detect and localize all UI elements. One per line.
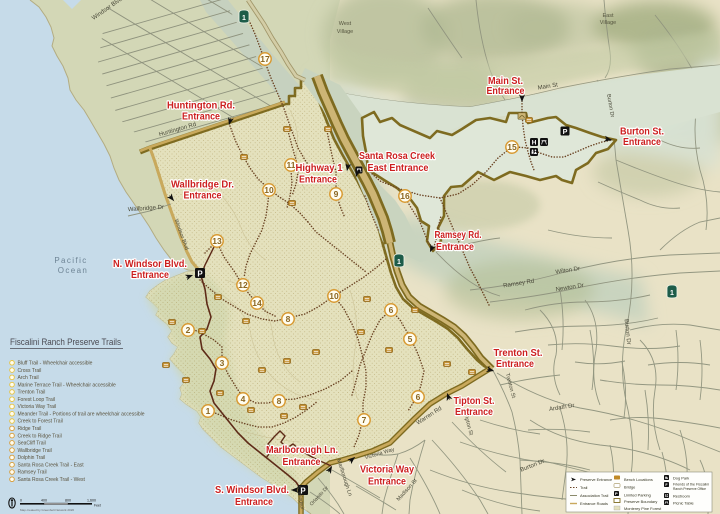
svg-text:8: 8 — [286, 314, 291, 324]
svg-text:Entrance: Entrance — [368, 476, 406, 488]
svg-text:Entrance: Entrance — [487, 85, 525, 97]
svg-text:Creek to Ridge Trail: Creek to Ridge Trail — [18, 433, 62, 439]
svg-text:Dog Park: Dog Park — [673, 476, 689, 481]
svg-text:Ramsey Rd.: Ramsey Rd. — [435, 229, 482, 241]
svg-text:P: P — [563, 127, 568, 136]
svg-text:Map created by Greenbelt Netwo: Map created by Greenbelt Network 2020 — [20, 508, 74, 512]
svg-text:Restroom: Restroom — [673, 494, 690, 499]
svg-text:Bluff Trail - Wheelchair acces: Bluff Trail - Wheelchair accessible — [18, 361, 93, 367]
svg-text:P: P — [197, 269, 203, 278]
svg-text:Association Trail: Association Trail — [580, 493, 608, 498]
svg-text:1: 1 — [397, 259, 401, 266]
svg-text:Ramsey Trail: Ramsey Trail — [18, 470, 47, 476]
svg-text:Victoria Way: Victoria Way — [360, 464, 414, 476]
svg-text:1: 1 — [206, 406, 211, 416]
svg-text:Victoria Way Trail: Victoria Way Trail — [18, 404, 57, 410]
svg-text:Feet: Feet — [94, 504, 101, 508]
svg-text:Preserve Boundary: Preserve Boundary — [624, 499, 657, 504]
svg-text:Village: Village — [337, 29, 353, 35]
svg-text:Village: Village — [600, 20, 616, 26]
svg-text:Creek to Forest Trail: Creek to Forest Trail — [18, 419, 63, 425]
svg-text:3: 3 — [220, 358, 225, 368]
svg-text:Wallbridge Trail: Wallbridge Trail — [18, 448, 52, 454]
svg-text:Entrance Roads: Entrance Roads — [580, 501, 608, 506]
svg-text:400: 400 — [41, 499, 47, 503]
svg-text:12: 12 — [238, 280, 248, 290]
svg-text:East: East — [602, 13, 613, 19]
svg-text:West: West — [339, 21, 352, 27]
svg-text:Ocean: Ocean — [58, 266, 89, 275]
svg-text:Trail: Trail — [580, 485, 588, 490]
svg-text:1: 1 — [242, 15, 246, 22]
svg-text:S. Windsor Blvd.: S. Windsor Blvd. — [215, 484, 289, 496]
svg-text:Ridge Trail: Ridge Trail — [18, 426, 42, 432]
svg-text:17: 17 — [260, 54, 270, 64]
svg-text:10: 10 — [329, 291, 339, 301]
svg-text:Ranch Preserve Office: Ranch Preserve Office — [673, 486, 706, 491]
svg-text:1,600: 1,600 — [87, 499, 96, 503]
svg-text:Santa Rosa Creek Trail - East: Santa Rosa Creek Trail - East — [18, 462, 85, 468]
svg-text:Marine Terrace Trail - Wheelch: Marine Terrace Trail - Wheelchair access… — [18, 382, 116, 388]
svg-text:Entrance: Entrance — [182, 111, 220, 123]
svg-text:10: 10 — [264, 185, 274, 195]
svg-text:13: 13 — [212, 236, 222, 246]
svg-text:Meander Trail - Portions of tr: Meander Trail - Portions of trail are wh… — [18, 411, 145, 417]
svg-text:6: 6 — [416, 392, 421, 402]
svg-text:16: 16 — [400, 191, 410, 201]
svg-text:Entrance: Entrance — [436, 241, 474, 253]
svg-text:Arch Trail: Arch Trail — [18, 375, 39, 381]
svg-text:Bridge: Bridge — [624, 485, 635, 490]
svg-text:6: 6 — [389, 305, 394, 315]
svg-text:8: 8 — [277, 396, 282, 406]
svg-text:Entrance: Entrance — [184, 190, 222, 202]
svg-text:Trenton Trail: Trenton Trail — [18, 390, 46, 396]
svg-text:Santa Rosa Creek: Santa Rosa Creek — [359, 150, 435, 162]
svg-text:Limited Parking: Limited Parking — [624, 492, 651, 497]
svg-text:Highway 1: Highway 1 — [296, 162, 343, 174]
svg-text:Entrance: Entrance — [235, 496, 273, 508]
svg-text:Bench Locations: Bench Locations — [624, 477, 653, 482]
svg-text:Monterey Pine Forest: Monterey Pine Forest — [624, 506, 662, 511]
svg-text:Cross Trail: Cross Trail — [18, 368, 42, 374]
svg-text:Entrance: Entrance — [623, 136, 661, 148]
svg-text:Forest Loop Trail: Forest Loop Trail — [18, 397, 56, 403]
svg-text:4: 4 — [241, 394, 246, 404]
svg-text:Entrance: Entrance — [283, 456, 321, 468]
svg-text:Dolphin Trail: Dolphin Trail — [18, 455, 46, 461]
svg-text:1: 1 — [670, 290, 674, 297]
svg-text:Entrance: Entrance — [455, 406, 493, 418]
svg-text:Preserve Entrance: Preserve Entrance — [580, 477, 612, 482]
svg-text:2: 2 — [186, 325, 191, 335]
svg-text:14: 14 — [252, 298, 262, 308]
svg-text:Pacific: Pacific — [54, 256, 87, 265]
svg-text:Santa Rosa Creek Trail - West: Santa Rosa Creek Trail - West — [18, 477, 86, 483]
svg-text:Entrance: Entrance — [299, 174, 337, 186]
svg-text:7: 7 — [362, 415, 367, 425]
svg-text:5: 5 — [408, 334, 413, 344]
svg-text:15: 15 — [507, 142, 517, 152]
svg-text:11: 11 — [287, 160, 296, 170]
svg-text:800: 800 — [65, 499, 71, 503]
svg-text:P: P — [615, 491, 618, 496]
svg-text:H: H — [532, 140, 537, 147]
svg-text:East Entrance: East Entrance — [368, 162, 429, 174]
svg-text:Entrance: Entrance — [496, 358, 534, 370]
svg-text:SeaCliff Trail: SeaCliff Trail — [18, 441, 46, 447]
svg-text:0: 0 — [20, 499, 22, 503]
svg-text:9: 9 — [334, 189, 339, 199]
svg-text:Entrance: Entrance — [131, 269, 169, 281]
svg-text:Picnic Table: Picnic Table — [673, 501, 694, 506]
svg-text:Fiscalini Ranch Preserve Trail: Fiscalini Ranch Preserve Trails — [10, 337, 121, 347]
svg-text:Marlborough Ln.: Marlborough Ln. — [266, 444, 338, 456]
